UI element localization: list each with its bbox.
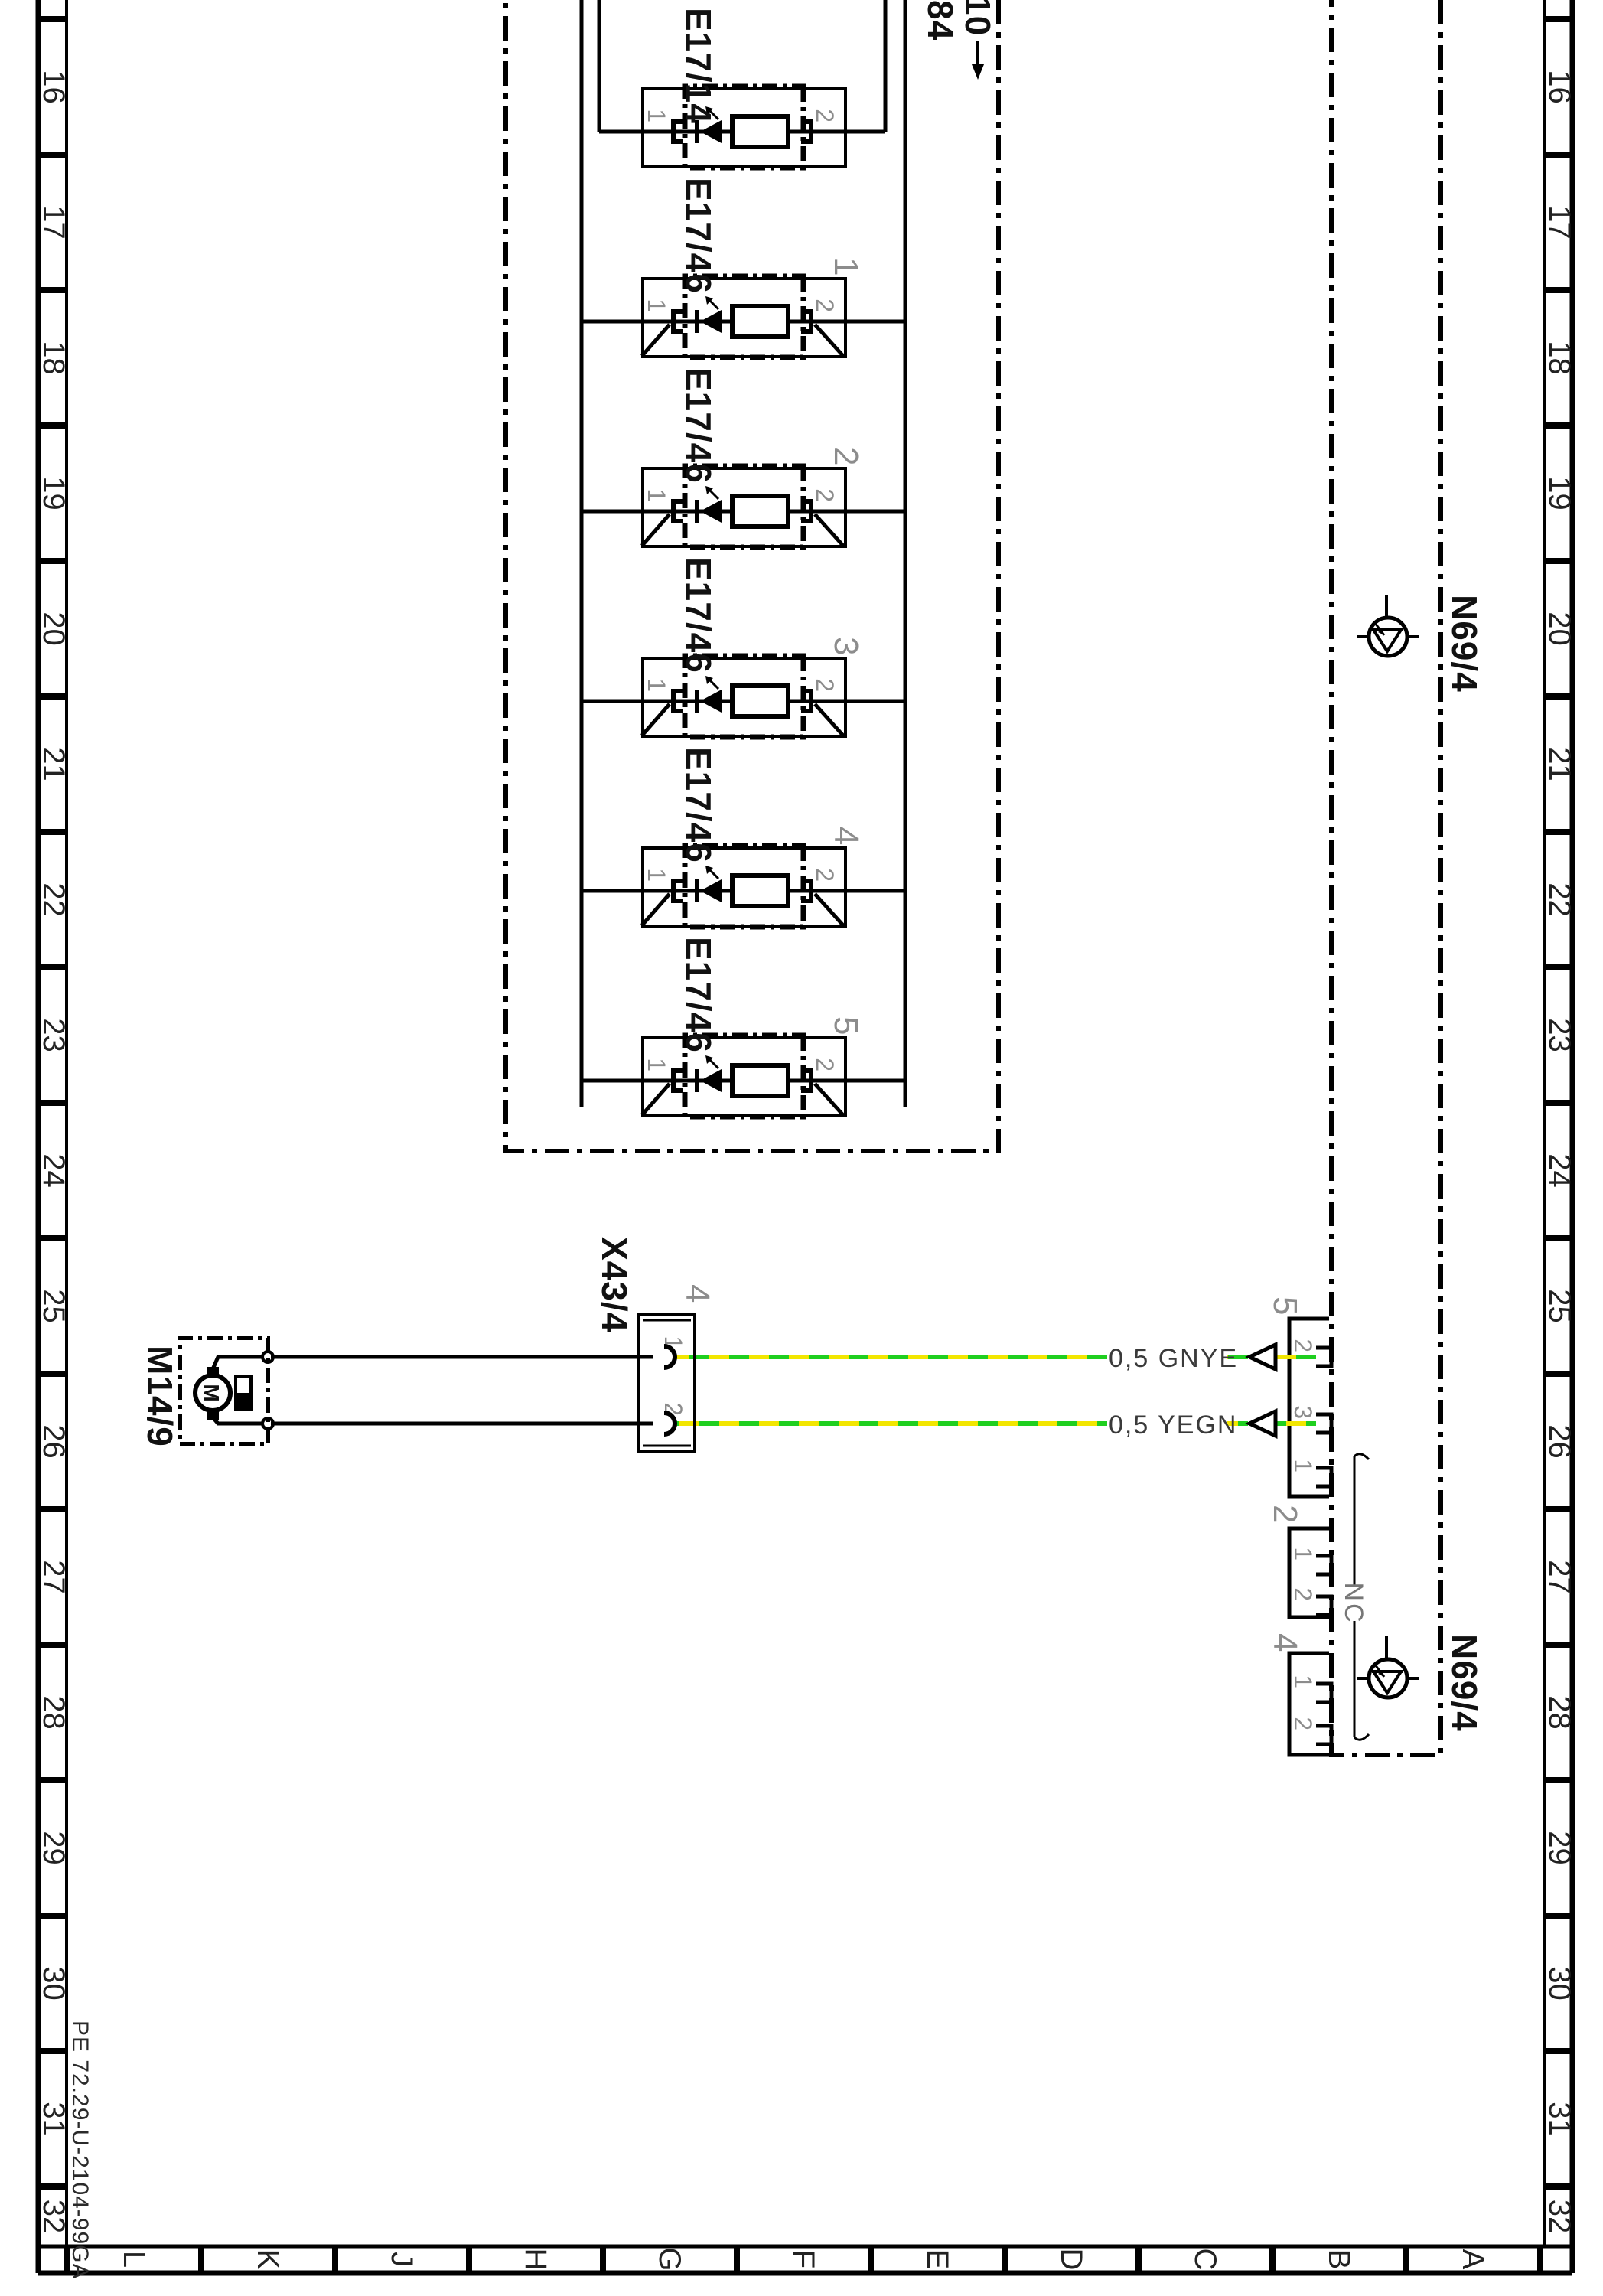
pump-label: M14/9 <box>140 1345 180 1447</box>
cu-pin-label: 2 <box>1289 1339 1317 1352</box>
grid-column-number: 28 <box>37 1695 70 1730</box>
grid-column-number: 28 <box>1543 1695 1576 1730</box>
lamp-index: 5 <box>827 1016 865 1035</box>
resistor-icon <box>732 1065 788 1096</box>
grid-column-number: 17 <box>37 205 70 240</box>
grid-column-number: 19 <box>37 476 70 510</box>
grid-rows: ABCDEFGHJKL <box>67 2246 1540 2273</box>
cu-connector-index: 5 <box>1266 1296 1304 1315</box>
lamp-module: E17/46112 <box>582 178 905 357</box>
cu-connector: 5231 <box>1266 1296 1331 1496</box>
cu-connector-index: 2 <box>1266 1505 1304 1523</box>
grid-column-number: 21 <box>37 747 70 781</box>
led-diode-icon <box>700 690 722 713</box>
lamp-pin2-label: 2 <box>811 488 839 502</box>
driver-symbol <box>1357 1636 1419 1698</box>
lamp-wire-diagonal-bottom <box>642 325 670 356</box>
x43-pin1-label: 1 <box>660 1336 687 1349</box>
grid-column-number: 22 <box>1543 882 1576 917</box>
lamp-wire-diagonal-bottom <box>642 704 670 735</box>
lamp-module: E17/46212 <box>582 367 905 547</box>
fuse-continuation-label: 10 <box>958 0 998 36</box>
grid-scales: 1616171718181919202021212222232324242525… <box>37 19 1576 2233</box>
grid-column-number: 16 <box>1543 70 1576 104</box>
lamp-label: E17/46 <box>679 937 718 1053</box>
x43-socket-1-icon <box>664 1346 675 1368</box>
grid-column-number: 32 <box>1543 2200 1576 2234</box>
grid-column-number: 25 <box>37 1289 70 1323</box>
resistor-icon <box>732 496 788 527</box>
x43-pin2-label: 2 <box>660 1402 687 1416</box>
control-unit-label-left: N69/4 <box>1445 595 1484 693</box>
lamp-pin2-label: 2 <box>811 298 839 312</box>
grid-column-number: 24 <box>37 1153 70 1188</box>
cu-connector: 212 <box>1266 1505 1331 1617</box>
wire-label-yegn: 0,5 YEGN <box>1109 1411 1237 1440</box>
grid-row-letter: J <box>385 2252 419 2267</box>
led-diode-icon <box>700 1069 722 1092</box>
lamp-index: 3 <box>827 637 865 655</box>
lamp-index: 1 <box>827 257 865 276</box>
wiring-diagram: 1616171718181919202021212222232324242525… <box>0 0 1603 2296</box>
grid-column-number: 29 <box>37 1831 70 1865</box>
lamp-wire-diagonal-top <box>815 514 843 546</box>
lamp-pin2-label: 2 <box>811 1058 839 1071</box>
cu-connector: 412 <box>1266 1633 1331 1755</box>
resistor-icon <box>732 116 788 147</box>
grid-row-letter: B <box>1322 2249 1356 2270</box>
grid-column-number: 20 <box>1543 612 1576 646</box>
motor-letter: M <box>200 1384 223 1401</box>
lamp-label: E17/46 <box>679 747 718 863</box>
grid-column-number: 18 <box>1543 341 1576 375</box>
lamp-pin1-label: 1 <box>643 298 670 312</box>
lamp-modules: E17/1412E17/46112E17/46212E17/46312E17/4… <box>582 8 905 1117</box>
grid-row-letter: F <box>787 2250 820 2268</box>
connector-x43-4: 4 1 2 X43/4 <box>595 1237 716 1452</box>
grid-column-number: 30 <box>37 1966 70 2001</box>
lamp-pin1-label: 1 <box>643 678 670 692</box>
grid-column-number: 27 <box>1543 1560 1576 1594</box>
grid-column-number: 31 <box>1543 2102 1576 2136</box>
lamp-label: E17/14 <box>679 8 718 124</box>
lamp-wire-diagonal-bottom <box>642 514 670 546</box>
grid-row-letter: D <box>1054 2249 1088 2271</box>
x43-housing <box>639 1314 695 1452</box>
grid-column-number: 25 <box>1543 1289 1576 1323</box>
lamp-label: E17/46 <box>679 557 718 673</box>
control-unit-n69-4: N69/4 N69/4 NC 5231212412 <box>1266 0 1484 1755</box>
lamp-pin2-label: 2 <box>811 678 839 692</box>
lamp-label: E17/46 <box>679 367 718 484</box>
wire-direction-arrow-icon <box>1249 1345 1276 1369</box>
grid-column-number: 32 <box>37 2200 70 2234</box>
lamp-pin2-label: 2 <box>811 109 839 122</box>
grid-column-number: 23 <box>1543 1018 1576 1052</box>
lamp-pin1-label: 1 <box>643 1058 670 1071</box>
lamp-wire-diagonal-top <box>815 894 843 925</box>
grid-column-number: 16 <box>37 70 70 104</box>
schematic-page: 1616171718181919202021212222232324242525… <box>0 0 1603 2296</box>
lamp-index: 2 <box>827 447 865 465</box>
grid-column-number: 26 <box>1543 1424 1576 1459</box>
resistor-icon <box>732 686 788 716</box>
nc-label: NC <box>1339 1582 1368 1624</box>
grid-column-number: 24 <box>1543 1153 1576 1188</box>
grid-column-number: 26 <box>37 1424 70 1459</box>
grid-row-letter: E <box>920 2249 954 2270</box>
pump-element-fill <box>236 1393 251 1409</box>
nc-brace-hook-left <box>1354 1454 1369 1459</box>
frame: 1616171718181919202021212222232324242525… <box>37 0 1576 2280</box>
grid-column-number: 27 <box>37 1560 70 1594</box>
led-diode-icon <box>700 500 722 523</box>
lamp-wire-diagonal-bottom <box>642 1084 670 1115</box>
lamp-pin1-label: 1 <box>643 488 670 502</box>
document-number: PE 72.29-U-2104-99GA <box>67 2020 93 2280</box>
grid-column-number: 20 <box>37 612 70 646</box>
grid-column-number: 18 <box>37 341 70 375</box>
rotated-canvas: 1616171718181919202021212222232324242525… <box>0 0 1603 2296</box>
lamp-wire-diagonal-top <box>815 704 843 735</box>
wire-label-gnye: 0,5 GNYE <box>1109 1344 1238 1373</box>
continuation-arrow-icon <box>972 64 984 80</box>
wire-number-label: 84 <box>920 0 960 41</box>
lamp-module: E17/46412 <box>582 747 905 927</box>
grid-row-letter: K <box>251 2249 285 2270</box>
lamp-pin1-label: 1 <box>643 868 670 882</box>
grid-column-number: 21 <box>1543 747 1576 781</box>
lamp-pin1-label: 1 <box>643 109 670 122</box>
x43-index: 4 <box>679 1284 716 1303</box>
cu-pin-label: 3 <box>1289 1405 1317 1419</box>
grid-column-number: 19 <box>1543 476 1576 510</box>
grid-row-letter: G <box>653 2247 686 2271</box>
grid-row-letter: H <box>519 2249 552 2271</box>
grid-row-letter: C <box>1188 2249 1222 2271</box>
led-diode-icon <box>700 310 722 333</box>
grid-column-number: 22 <box>37 882 70 917</box>
grid-row-letter: A <box>1456 2249 1490 2270</box>
driver-diode-triangle <box>1373 1671 1401 1693</box>
driver-symbol <box>1357 595 1419 656</box>
cu-pin-label: 2 <box>1289 1717 1317 1730</box>
lamp-wire-diagonal-top <box>815 325 843 356</box>
resistor-icon <box>732 306 788 337</box>
grid-column-number: 31 <box>37 2102 70 2136</box>
lamp-module: E17/46312 <box>582 557 905 737</box>
cu-connector-index: 4 <box>1266 1633 1304 1652</box>
wire-direction-arrow-icon <box>1249 1411 1276 1436</box>
control-unit-boundary-box <box>1331 0 1441 1755</box>
grid-column-number: 30 <box>1543 1966 1576 2001</box>
lamp-wire-diagonal-top <box>815 1084 843 1115</box>
pump-m14-9: M M14/9 <box>140 1338 273 1447</box>
cu-pin-label: 1 <box>1289 1547 1317 1561</box>
lamp-module: E17/1412 <box>599 8 885 168</box>
driver-symbols <box>1357 595 1419 1698</box>
lamp-label: E17/46 <box>679 178 718 294</box>
nc-brace-hook-right <box>1354 1734 1369 1740</box>
resistor-icon <box>732 876 788 906</box>
lamp-index: 4 <box>827 827 865 845</box>
grid-column-number: 17 <box>1543 205 1576 240</box>
grid-row-letter: L <box>117 2251 151 2268</box>
led-diode-icon <box>700 879 722 902</box>
control-unit-label-right: N69/4 <box>1445 1634 1484 1732</box>
grid-column-number: 23 <box>37 1018 70 1052</box>
driver-diode-triangle <box>1373 630 1401 651</box>
lamp-module: E17/46512 <box>582 937 905 1117</box>
cu-pin-label: 1 <box>1289 1459 1317 1473</box>
cu-pin-label: 1 <box>1289 1675 1317 1688</box>
lamp-pin2-label: 2 <box>811 868 839 882</box>
lamp-wire-diagonal-bottom <box>642 894 670 925</box>
cu-pin-label: 2 <box>1289 1587 1317 1601</box>
grid-column-number: 29 <box>1543 1831 1576 1865</box>
x43-label: X43/4 <box>595 1237 634 1332</box>
lamp-group-e17: 10 84 E17/1412E17/46112E17/46212E17/4631… <box>506 0 999 1151</box>
x43-socket-2-icon <box>664 1413 675 1434</box>
